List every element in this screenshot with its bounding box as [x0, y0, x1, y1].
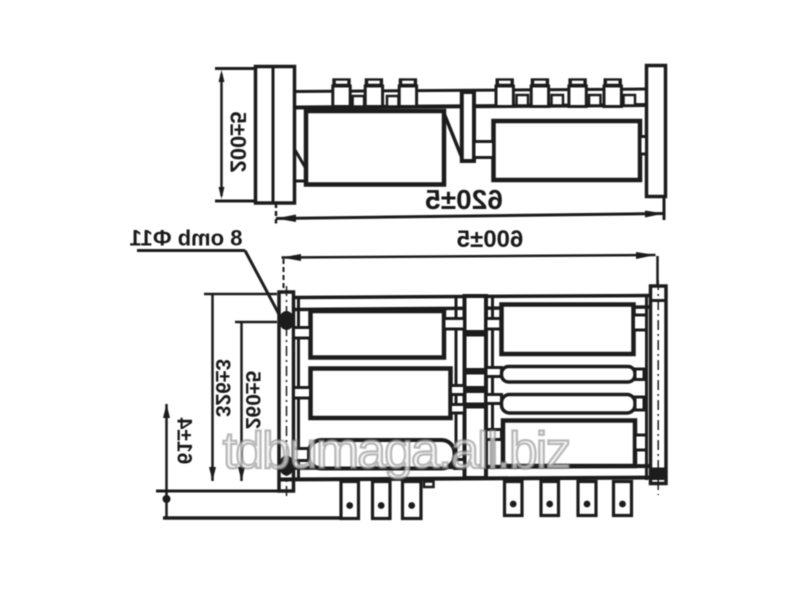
svg-text:326±3: 326±3	[211, 359, 234, 417]
svg-text:200±5: 200±5	[226, 111, 251, 172]
svg-text:tdbumaga.all.biz: tdbumaga.all.biz	[223, 422, 570, 480]
svg-text:600±5: 600±5	[457, 226, 524, 253]
svg-text:620±5: 620±5	[425, 184, 503, 215]
svg-text:61±4: 61±4	[173, 417, 196, 464]
svg-text:8 omb Ф11: 8 omb Ф11	[130, 226, 243, 251]
svg-text:260±5: 260±5	[241, 371, 264, 430]
